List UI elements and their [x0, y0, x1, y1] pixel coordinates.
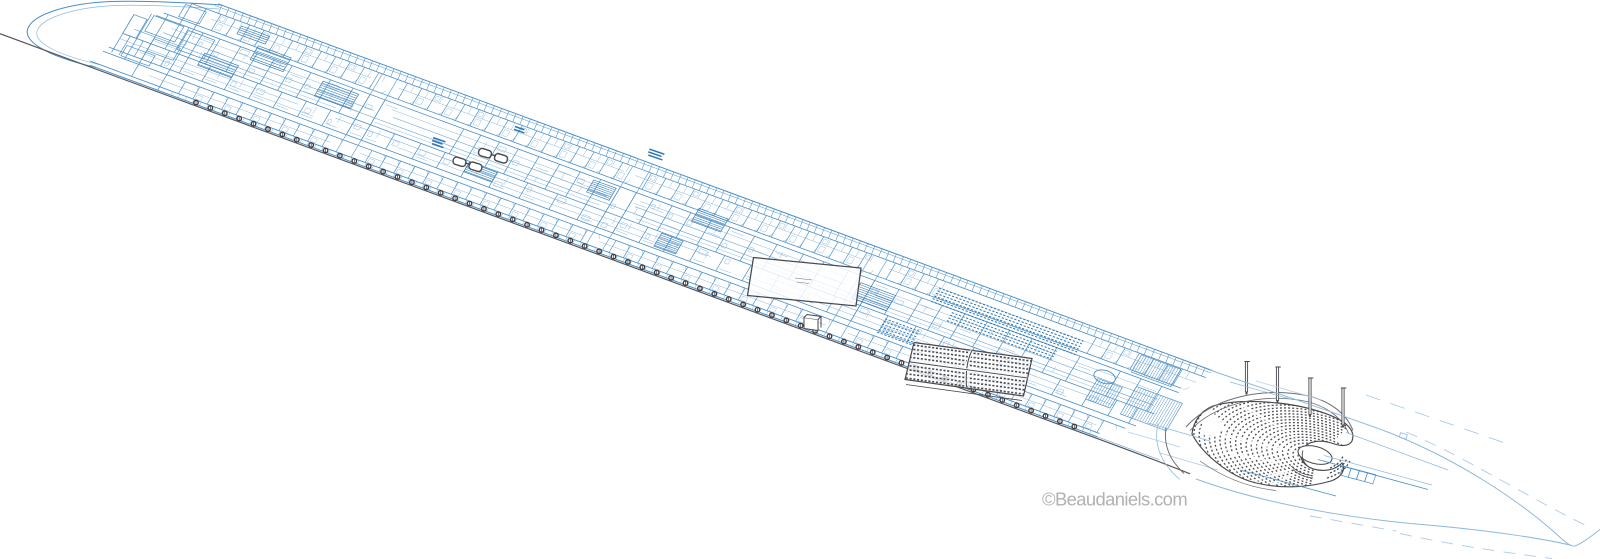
svg-text:©Beaudaniels.com: ©Beaudaniels.com	[1042, 489, 1187, 510]
